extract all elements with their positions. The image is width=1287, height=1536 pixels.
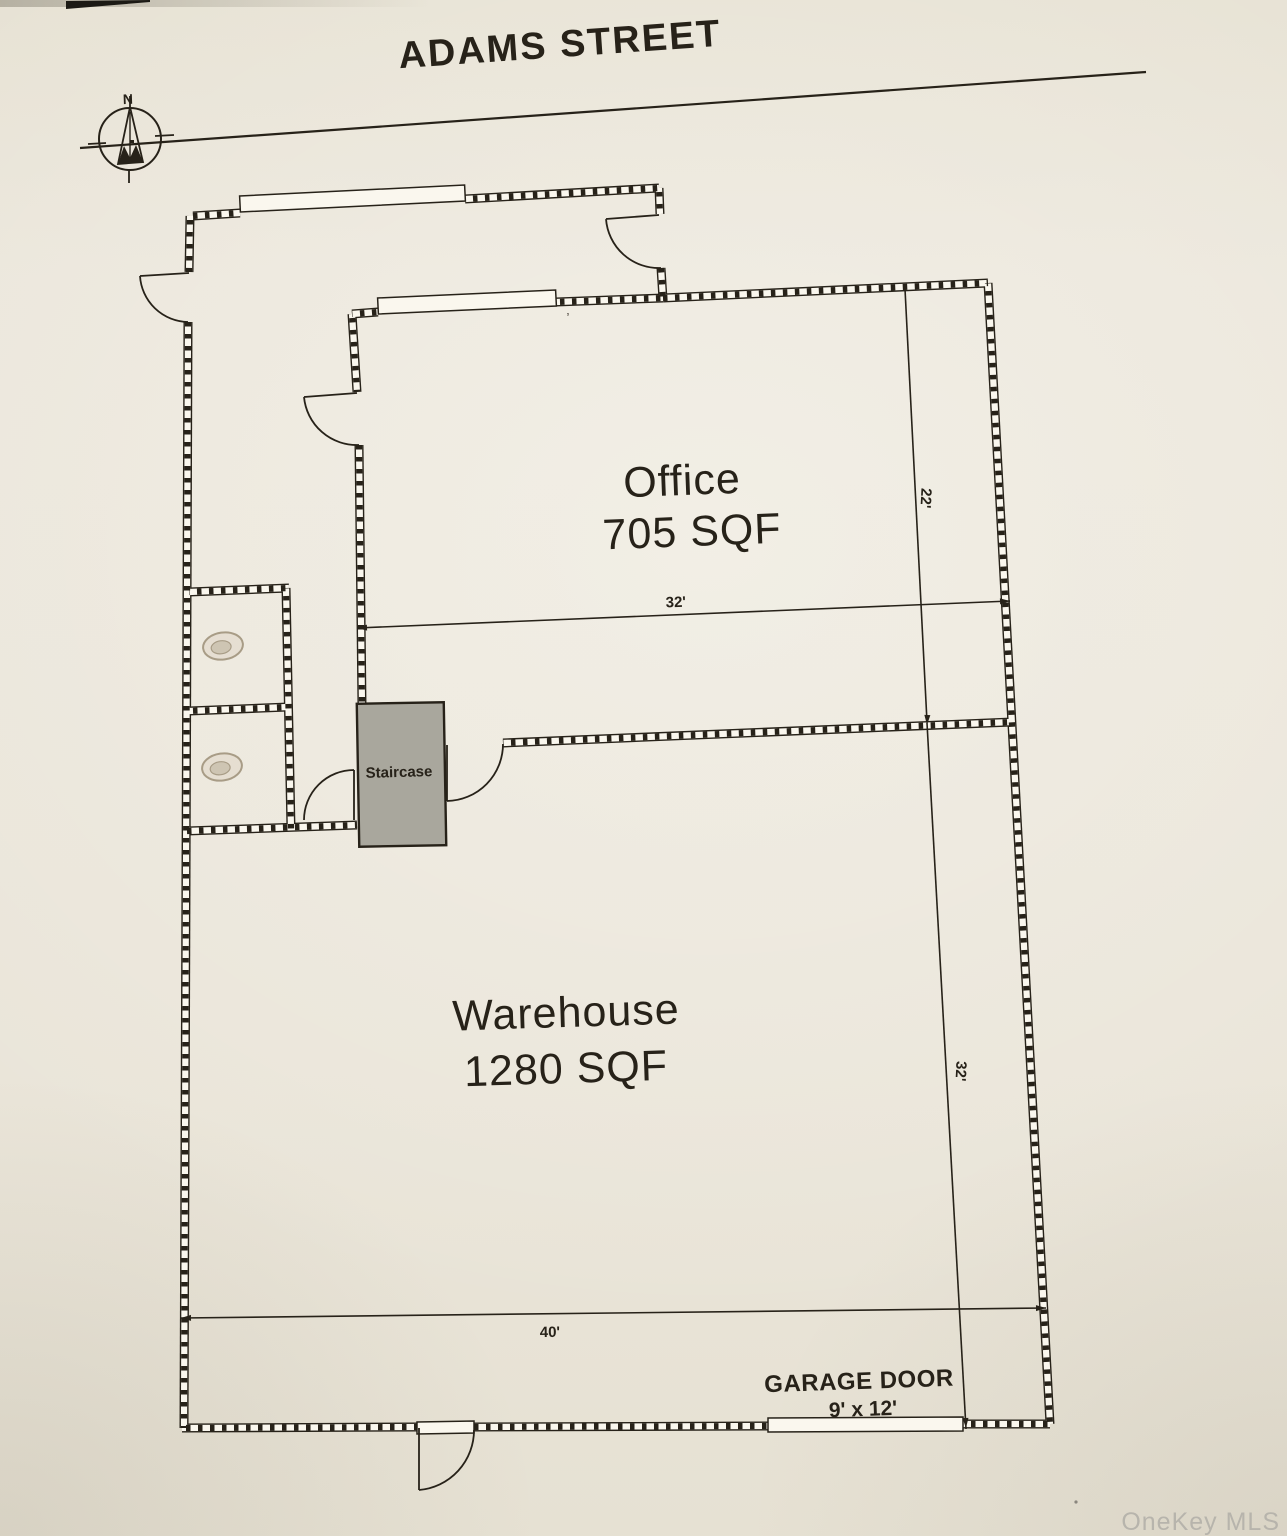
door-swing [419,1428,474,1490]
wall-core [189,588,289,592]
office-room-label: Office [622,455,741,507]
window-marker [417,1421,474,1434]
door-swing [304,393,359,445]
street-line [80,72,1146,148]
staircase-label: Staircase [365,763,432,782]
dim-warehouse-depth-label: 32' [951,1061,969,1082]
paper-background: N Staircase ADAMS STREET Office 705 SQF … [0,0,1287,1536]
toilet-icon [200,751,243,783]
door-swing [447,744,503,801]
watermark: OneKey MLS [1121,1508,1280,1536]
staircase: Staircase [357,702,446,846]
door-swings-layer [140,215,661,1490]
walls-layer [182,188,1050,1428]
door-swing [304,770,354,820]
dimension-line [181,1308,1046,1318]
wall-core [659,188,660,214]
garage-door-label: GARAGE DOOR [764,1365,954,1399]
compass-north-label: N [122,91,133,107]
wall-core [189,707,288,711]
compass-center-dot [130,140,134,143]
window-marker [240,185,466,212]
photo-edge-artifact [66,0,150,9]
warehouse-room-label: Warehouse [452,985,681,1040]
door-swing [606,215,661,268]
toilet-icon [201,630,244,662]
labels-layer: ADAMS STREET Office 705 SQF Warehouse 12… [397,13,1280,1536]
floor-plan-canvas: N Staircase ADAMS STREET Office 705 SQF … [0,0,1287,1536]
wall-hatching [556,298,663,302]
paper-speck [1074,1500,1077,1503]
wall-core [503,722,1012,743]
stray-tick-mark: ’ [567,310,570,325]
dim-office-width-label: 32' [665,594,686,612]
door-swing [140,273,189,322]
compass-rose: N [88,91,174,183]
dimension-lines-layer [181,289,1046,1429]
windows-layer [240,185,963,1434]
dim-warehouse-width-label: 40' [540,1324,561,1341]
garage-door-size-label: 9' x 12' [828,1397,897,1422]
office-area-label: 705 SQF [602,505,783,560]
page-title: ADAMS STREET [397,13,723,77]
dim-office-depth-label: 22' [916,488,934,509]
warehouse-area-label: 1280 SQF [463,1042,668,1096]
window-marker [378,290,557,314]
